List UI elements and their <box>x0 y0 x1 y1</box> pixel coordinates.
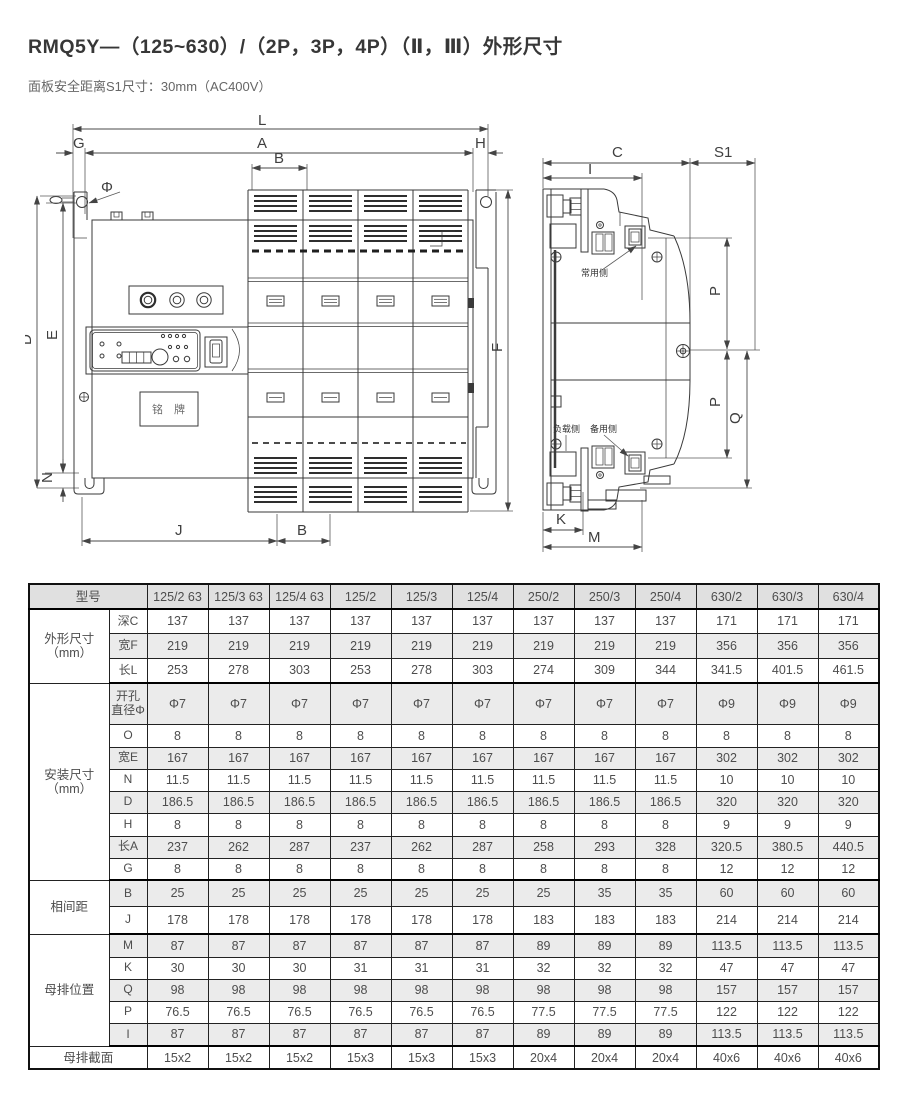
cell: 76.5 <box>452 1001 513 1023</box>
cell: 76.5 <box>391 1001 452 1023</box>
cell: 137 <box>147 609 208 633</box>
cell: 219 <box>391 633 452 658</box>
cell: 630/2 <box>696 584 757 609</box>
cell: 8 <box>208 858 269 880</box>
cell: 302 <box>757 747 818 769</box>
cell: 125/4 63 <box>269 584 330 609</box>
cell: 8 <box>635 858 696 880</box>
cell: 401.5 <box>757 658 818 683</box>
cell: 186.5 <box>330 791 391 813</box>
cell: 186.5 <box>208 791 269 813</box>
side-case-outline <box>543 189 690 510</box>
dim-F: F <box>489 343 506 352</box>
dim-G: G <box>73 135 85 152</box>
mounting-hole <box>77 197 88 208</box>
dimension-table: 型号125/2 63125/3 63125/4 63125/2125/3125/… <box>28 583 880 1070</box>
cell: Φ9 <box>818 683 879 724</box>
cell: 8 <box>330 858 391 880</box>
cell: P <box>109 1001 147 1023</box>
cell: 40x6 <box>757 1046 818 1069</box>
cell: Φ7 <box>452 683 513 724</box>
table-row: N11.511.511.511.511.511.511.511.511.5101… <box>29 769 879 791</box>
table-row: 安装尺寸（mm）开孔直径ΦΦ7Φ7Φ7Φ7Φ7Φ7Φ7Φ7Φ7Φ9Φ9Φ9 <box>29 683 879 724</box>
cell: 8 <box>208 724 269 747</box>
cell: 320 <box>696 791 757 813</box>
dim-A: A <box>257 135 267 152</box>
cell: 60 <box>696 880 757 906</box>
cell: O <box>109 724 147 747</box>
cell: M <box>109 934 147 957</box>
cell: 113.5 <box>818 1023 879 1046</box>
cell: 171 <box>757 609 818 633</box>
datasheet-page: RMQ5Y—（125~630）/（2P，3P，4P）（Ⅱ，Ⅲ）外形尺寸 面板安全… <box>0 0 900 1105</box>
cell: 母排截面 <box>29 1046 147 1069</box>
cell: 258 <box>513 836 574 858</box>
cell: 171 <box>696 609 757 633</box>
cell: 98 <box>269 979 330 1001</box>
cell: 303 <box>452 658 513 683</box>
cell: Q <box>109 979 147 1001</box>
cell: 76.5 <box>269 1001 330 1023</box>
cell: 214 <box>818 906 879 934</box>
cell: 303 <box>269 658 330 683</box>
dim-P-lower: P <box>707 397 724 407</box>
cell: 183 <box>513 906 574 934</box>
cell: 宽E <box>109 747 147 769</box>
cell: 125/2 63 <box>147 584 208 609</box>
cell: 137 <box>330 609 391 633</box>
cell: Φ7 <box>391 683 452 724</box>
cell: 89 <box>635 1023 696 1046</box>
cell: 87 <box>208 934 269 957</box>
dim-E: E <box>44 330 61 340</box>
cell: 113.5 <box>757 1023 818 1046</box>
cell: 开孔直径Φ <box>109 683 147 724</box>
cell: 89 <box>574 1023 635 1046</box>
cell: 11.5 <box>635 769 696 791</box>
cell: B <box>109 880 147 906</box>
cell: N <box>109 769 147 791</box>
cell: 98 <box>635 979 696 1001</box>
cell: 186.5 <box>269 791 330 813</box>
cell: 98 <box>147 979 208 1001</box>
cell: 35 <box>635 880 696 906</box>
cell: 178 <box>269 906 330 934</box>
dim-J: J <box>175 522 183 539</box>
page-subtitle: 面板安全距离S1尺寸：30mm（AC400V） <box>28 76 271 95</box>
cell: 461.5 <box>818 658 879 683</box>
cell: 309 <box>574 658 635 683</box>
cell: 186.5 <box>513 791 574 813</box>
cell: 219 <box>635 633 696 658</box>
cell: 157 <box>818 979 879 1001</box>
cell: 8 <box>452 813 513 836</box>
selector-knobs <box>141 293 211 307</box>
cell: 8 <box>696 724 757 747</box>
dim-H: H <box>475 135 486 152</box>
table-row: H888888888999 <box>29 813 879 836</box>
cell: 250/2 <box>513 584 574 609</box>
cell: 宽F <box>109 633 147 658</box>
cell: 89 <box>574 934 635 957</box>
cell: 167 <box>452 747 513 769</box>
cell: 178 <box>452 906 513 934</box>
cell: Φ7 <box>513 683 574 724</box>
cell: 8 <box>574 813 635 836</box>
cell: 167 <box>635 747 696 769</box>
cell: 113.5 <box>818 934 879 957</box>
cell: 253 <box>330 658 391 683</box>
cell: 320.5 <box>696 836 757 858</box>
cell: 302 <box>818 747 879 769</box>
cell: 10 <box>818 769 879 791</box>
cell: 8 <box>391 858 452 880</box>
cell: 440.5 <box>818 836 879 858</box>
cell: 8 <box>147 858 208 880</box>
cell: 8 <box>147 813 208 836</box>
pole-modules <box>248 190 468 512</box>
cell: 87 <box>330 934 391 957</box>
cell: 250/4 <box>635 584 696 609</box>
cell: 125/2 <box>330 584 391 609</box>
cell: 11.5 <box>147 769 208 791</box>
cell: 137 <box>635 609 696 633</box>
cell: Φ7 <box>269 683 330 724</box>
cell: 25 <box>330 880 391 906</box>
cell: 20x4 <box>574 1046 635 1069</box>
cell: 89 <box>635 934 696 957</box>
cell: 11.5 <box>391 769 452 791</box>
cell: 98 <box>452 979 513 1001</box>
mounting-hole <box>481 197 492 208</box>
cell: 137 <box>208 609 269 633</box>
cell: 8 <box>269 813 330 836</box>
cell: 31 <box>391 957 452 979</box>
cell: 167 <box>208 747 269 769</box>
cell: 8 <box>452 858 513 880</box>
cell: 262 <box>391 836 452 858</box>
backup-side-label: 备用侧 <box>590 423 617 434</box>
cell: 87 <box>147 1023 208 1046</box>
cell: Φ7 <box>147 683 208 724</box>
cell: 186.5 <box>147 791 208 813</box>
cell: 60 <box>818 880 879 906</box>
cell: 98 <box>513 979 574 1001</box>
dim-C: C <box>612 144 623 161</box>
cell: 214 <box>757 906 818 934</box>
side-view-drawing: C S1 I P P Q K M <box>515 120 900 580</box>
cell: 8 <box>635 813 696 836</box>
cell: 77.5 <box>513 1001 574 1023</box>
cell: 274 <box>513 658 574 683</box>
cell: 287 <box>452 836 513 858</box>
table-row: G888888888121212 <box>29 858 879 880</box>
cell: 9 <box>818 813 879 836</box>
cell: 178 <box>330 906 391 934</box>
dim-K: K <box>556 511 566 528</box>
group-label: 安装尺寸（mm） <box>29 683 109 880</box>
cell: 25 <box>513 880 574 906</box>
cell: 25 <box>391 880 452 906</box>
dim-Q: Q <box>727 412 744 424</box>
cell: 25 <box>269 880 330 906</box>
cell: 87 <box>269 1023 330 1046</box>
cell: 262 <box>208 836 269 858</box>
table-row: 外形尺寸（mm）深C137137137137137137137137137171… <box>29 609 879 633</box>
cell: 15x3 <box>391 1046 452 1069</box>
cell: 20x4 <box>513 1046 574 1069</box>
controller-section: 铭 牌 <box>80 286 249 426</box>
cell: 98 <box>208 979 269 1001</box>
cell: 253 <box>147 658 208 683</box>
cell: 178 <box>208 906 269 934</box>
dim-phi: Φ <box>101 179 113 196</box>
cell: 8 <box>757 724 818 747</box>
dim-I: I <box>588 161 592 178</box>
cell: H <box>109 813 147 836</box>
dim-M: M <box>588 529 601 546</box>
cell: 178 <box>147 906 208 934</box>
cell: 9 <box>757 813 818 836</box>
cell: 87 <box>452 1023 513 1046</box>
cell: 278 <box>391 658 452 683</box>
cell: 8 <box>574 724 635 747</box>
cell: 186.5 <box>574 791 635 813</box>
cell: 8 <box>147 724 208 747</box>
cell: 47 <box>757 957 818 979</box>
cell: 30 <box>147 957 208 979</box>
cell: 15x3 <box>330 1046 391 1069</box>
cell: 11.5 <box>208 769 269 791</box>
cell: 深C <box>109 609 147 633</box>
cell: 8 <box>391 813 452 836</box>
cell: 87 <box>147 934 208 957</box>
cell: 8 <box>452 724 513 747</box>
cell: 8 <box>391 724 452 747</box>
dim-B-bottom: B <box>297 522 307 539</box>
cell: 183 <box>635 906 696 934</box>
dim-N: N <box>39 472 56 483</box>
cell: 328 <box>635 836 696 858</box>
cell: 10 <box>696 769 757 791</box>
cell: 341.5 <box>696 658 757 683</box>
cell: 113.5 <box>696 1023 757 1046</box>
cell: 219 <box>574 633 635 658</box>
cell: 237 <box>147 836 208 858</box>
cell: 35 <box>574 880 635 906</box>
table-row: I878787878787898989113.5113.5113.5 <box>29 1023 879 1046</box>
cell: 87 <box>269 934 330 957</box>
cell: 122 <box>757 1001 818 1023</box>
cell: 32 <box>635 957 696 979</box>
cell: 87 <box>452 934 513 957</box>
cell: 8 <box>269 724 330 747</box>
table-row: D186.5186.5186.5186.5186.5186.5186.5186.… <box>29 791 879 813</box>
cell: 32 <box>513 957 574 979</box>
table-row: O888888888888 <box>29 724 879 747</box>
table-row: P76.576.576.576.576.576.577.577.577.5122… <box>29 1001 879 1023</box>
load-side-label: 负载侧 <box>553 423 580 434</box>
cell: 89 <box>513 1023 574 1046</box>
cell: 157 <box>757 979 818 1001</box>
table-row: J178178178178178178183183183214214214 <box>29 906 879 934</box>
cell: 87 <box>208 1023 269 1046</box>
cell: 157 <box>696 979 757 1001</box>
cell: 137 <box>452 609 513 633</box>
cell: 137 <box>391 609 452 633</box>
cell: D <box>109 791 147 813</box>
cell: 47 <box>696 957 757 979</box>
cell: 214 <box>696 906 757 934</box>
table-row: 宽F219219219219219219219219219356356356 <box>29 633 879 658</box>
table-row: K303030313131323232474747 <box>29 957 879 979</box>
cell: 10 <box>757 769 818 791</box>
cell: 76.5 <box>147 1001 208 1023</box>
cell: 40x6 <box>696 1046 757 1069</box>
cell: 219 <box>147 633 208 658</box>
cell: 8 <box>513 858 574 880</box>
cell: 15x3 <box>452 1046 513 1069</box>
cell: 87 <box>391 934 452 957</box>
cell: 137 <box>513 609 574 633</box>
cell: 183 <box>574 906 635 934</box>
cell: 15x2 <box>147 1046 208 1069</box>
cell: 219 <box>513 633 574 658</box>
cell: Φ9 <box>757 683 818 724</box>
cell: 137 <box>269 609 330 633</box>
cell: 15x2 <box>208 1046 269 1069</box>
cell: 25 <box>452 880 513 906</box>
cell: I <box>109 1023 147 1046</box>
cell: 31 <box>452 957 513 979</box>
cell: 167 <box>269 747 330 769</box>
cell: J <box>109 906 147 934</box>
cell: 89 <box>513 934 574 957</box>
cell: Φ7 <box>208 683 269 724</box>
table-row: 宽E167167167167167167167167167302302302 <box>29 747 879 769</box>
cell: 250/3 <box>574 584 635 609</box>
cell: 77.5 <box>635 1001 696 1023</box>
dim-S1: S1 <box>714 144 732 161</box>
cell: 25 <box>147 880 208 906</box>
cell: 167 <box>147 747 208 769</box>
cell: 11.5 <box>513 769 574 791</box>
cell: 长L <box>109 658 147 683</box>
cell: 型号 <box>29 584 147 609</box>
front-view-drawing: L G A H B Φ D E N F J B <box>25 115 515 570</box>
cell: 344 <box>635 658 696 683</box>
cell: 219 <box>208 633 269 658</box>
dim-L: L <box>258 115 266 129</box>
cell: 15x2 <box>269 1046 330 1069</box>
cell: 11.5 <box>452 769 513 791</box>
cell: 171 <box>818 609 879 633</box>
cell: 20x4 <box>635 1046 696 1069</box>
cell: 87 <box>330 1023 391 1046</box>
cell: 237 <box>330 836 391 858</box>
cell: 98 <box>574 979 635 1001</box>
cell: 87 <box>391 1023 452 1046</box>
cell: K <box>109 957 147 979</box>
cell: 25 <box>208 880 269 906</box>
dim-D: D <box>25 334 35 345</box>
cell: 122 <box>696 1001 757 1023</box>
cell: 219 <box>452 633 513 658</box>
cell: G <box>109 858 147 880</box>
cell: 76.5 <box>208 1001 269 1023</box>
cell: Φ7 <box>635 683 696 724</box>
cell: 380.5 <box>757 836 818 858</box>
cell: 293 <box>574 836 635 858</box>
cell: 167 <box>330 747 391 769</box>
cell: 长A <box>109 836 147 858</box>
dim-B-top: B <box>274 150 284 167</box>
page-title: RMQ5Y—（125~630）/（2P，3P，4P）（Ⅱ，Ⅲ）外形尺寸 <box>28 30 563 59</box>
cell: 278 <box>208 658 269 683</box>
cell: 8 <box>208 813 269 836</box>
cell: 630/3 <box>757 584 818 609</box>
cell: 11.5 <box>330 769 391 791</box>
cell: 122 <box>818 1001 879 1023</box>
cell: 8 <box>330 813 391 836</box>
cell: 11.5 <box>574 769 635 791</box>
cell: 98 <box>330 979 391 1001</box>
cell: 32 <box>574 957 635 979</box>
cell: 630/4 <box>818 584 879 609</box>
dim-P-upper: P <box>707 286 724 296</box>
cell: 8 <box>513 813 574 836</box>
table-row: 相间距B252525252525253535606060 <box>29 880 879 906</box>
dimension-table-wrap: 型号125/2 63125/3 63125/4 63125/2125/3125/… <box>28 583 880 1070</box>
cell: 31 <box>330 957 391 979</box>
cell: 8 <box>818 724 879 747</box>
cell: 47 <box>818 957 879 979</box>
cell: 178 <box>391 906 452 934</box>
group-label: 外形尺寸（mm） <box>29 609 109 683</box>
cell: 320 <box>818 791 879 813</box>
cell: 8 <box>513 724 574 747</box>
cell: 287 <box>269 836 330 858</box>
cell: 125/3 <box>391 584 452 609</box>
table-row: 长L253278303253278303274309344341.5401.54… <box>29 658 879 683</box>
cell: 30 <box>269 957 330 979</box>
cell: 76.5 <box>330 1001 391 1023</box>
rocker-switch <box>210 340 222 363</box>
cell: 113.5 <box>696 934 757 957</box>
cell: 186.5 <box>391 791 452 813</box>
cell: 11.5 <box>269 769 330 791</box>
cell: 186.5 <box>635 791 696 813</box>
table-row: 长A237262287237262287258293328320.5380.54… <box>29 836 879 858</box>
cell: 8 <box>269 858 330 880</box>
cell: 125/3 63 <box>208 584 269 609</box>
cell: 12 <box>696 858 757 880</box>
cell: 167 <box>513 747 574 769</box>
cell: 113.5 <box>757 934 818 957</box>
cell: 320 <box>757 791 818 813</box>
cell: 40x6 <box>818 1046 879 1069</box>
cell: 302 <box>696 747 757 769</box>
lower-terminal <box>547 396 670 511</box>
device-body <box>92 220 473 478</box>
cell: 356 <box>696 633 757 658</box>
cell: 219 <box>330 633 391 658</box>
group-label: 母排位置 <box>29 934 109 1046</box>
cell: 8 <box>574 858 635 880</box>
group-label: 相间距 <box>29 880 109 934</box>
cell: 9 <box>696 813 757 836</box>
cell: 60 <box>757 880 818 906</box>
